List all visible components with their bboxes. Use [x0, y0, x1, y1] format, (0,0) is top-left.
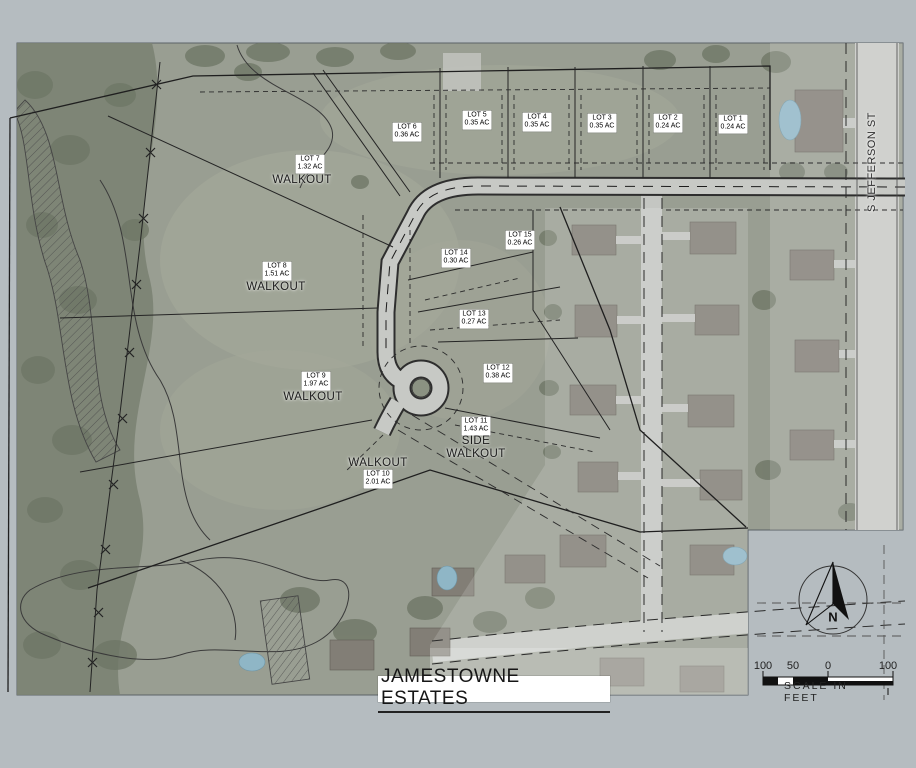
- scale-label-50: 50: [787, 660, 799, 672]
- lot-label-13: LOT 13 0.27 AC: [460, 310, 489, 329]
- lot-note-10: WALKOUT: [348, 457, 407, 469]
- lot-number: LOT 9: [304, 373, 329, 381]
- lot-note-8: WALKOUT: [246, 281, 305, 293]
- lot-area: 0.35 AC: [590, 123, 615, 131]
- lot-area: 1.32 AC: [298, 164, 323, 172]
- lot-note-7: WALKOUT: [272, 174, 331, 186]
- lot-label-8: LOT 8 1.51 AC: [263, 262, 292, 281]
- north-label: N: [828, 610, 837, 625]
- lot-area: 0.26 AC: [508, 240, 533, 248]
- lot-number: LOT 7: [298, 156, 323, 164]
- title-banner: JAMESTOWNE ESTATES: [378, 676, 610, 702]
- lot-area: 0.24 AC: [656, 123, 681, 131]
- lot-area: 0.35 AC: [525, 122, 550, 130]
- lot-area: 2.01 AC: [366, 479, 391, 487]
- lot-note-9: WALKOUT: [283, 391, 342, 403]
- lot-area: 0.36 AC: [395, 132, 420, 140]
- lot-number: LOT 3: [590, 115, 615, 123]
- lot-label-5: LOT 5 0.35 AC: [463, 111, 492, 130]
- lot-label-1: LOT 1 0.24 AC: [719, 115, 748, 134]
- lot-number: LOT 4: [525, 114, 550, 122]
- lot-number: LOT 8: [265, 263, 290, 271]
- scale-label-left-100: 100: [754, 660, 772, 672]
- lot-area: 0.38 AC: [486, 373, 511, 381]
- lot-label-4: LOT 4 0.35 AC: [523, 113, 552, 132]
- lot-label-15: LOT 15 0.26 AC: [506, 231, 535, 250]
- lot-number: LOT 14: [444, 250, 469, 258]
- scale-label-0: 0: [825, 660, 831, 672]
- lot-number: LOT 12: [486, 365, 511, 373]
- lot-number: LOT 15: [508, 232, 533, 240]
- lot-label-6: LOT 6 0.36 AC: [393, 123, 422, 142]
- scale-caption: SCALE IN FEET: [784, 680, 872, 704]
- scale-label-right-100: 100: [879, 660, 897, 672]
- lot-number: LOT 13: [462, 311, 487, 319]
- lot-area: 1.97 AC: [304, 381, 329, 389]
- lot-label-12: LOT 12 0.38 AC: [484, 364, 513, 383]
- lot-label-10: LOT 10 2.01 AC: [364, 470, 393, 489]
- plat-map: JAMESTOWNE ESTATES S JEFFERSON ST N 100 …: [0, 0, 916, 768]
- lot-label-9: LOT 9 1.97 AC: [302, 372, 331, 391]
- lot-number: LOT 2: [656, 115, 681, 123]
- lot-area: 0.27 AC: [462, 319, 487, 327]
- plat-drawing: [0, 0, 916, 768]
- lot-number: LOT 6: [395, 124, 420, 132]
- lot-note-11: SIDE WALKOUT: [444, 435, 508, 461]
- lot-area: 1.51 AC: [265, 271, 290, 279]
- lot-area: 0.24 AC: [721, 124, 746, 132]
- lot-area: 0.35 AC: [465, 120, 490, 128]
- lot-number: LOT 11: [464, 418, 489, 426]
- lot-label-3: LOT 3 0.35 AC: [588, 114, 617, 133]
- lot-area: 0.30 AC: [444, 258, 469, 266]
- lot-label-7: LOT 7 1.32 AC: [296, 155, 325, 174]
- lot-label-11: LOT 11 1.43 AC: [462, 417, 491, 436]
- lot-number: LOT 5: [465, 112, 490, 120]
- subdivision-title: JAMESTOWNE ESTATES: [378, 666, 610, 713]
- lot-area: 1.43 AC: [464, 426, 489, 434]
- lot-label-14: LOT 14 0.30 AC: [442, 249, 471, 268]
- lot-number: LOT 1: [721, 116, 746, 124]
- aerial-photo: [17, 42, 905, 695]
- lot-label-2: LOT 2 0.24 AC: [654, 114, 683, 133]
- street-label-s-jefferson: S JEFFERSON ST: [866, 90, 882, 212]
- lot-number: LOT 10: [366, 471, 391, 479]
